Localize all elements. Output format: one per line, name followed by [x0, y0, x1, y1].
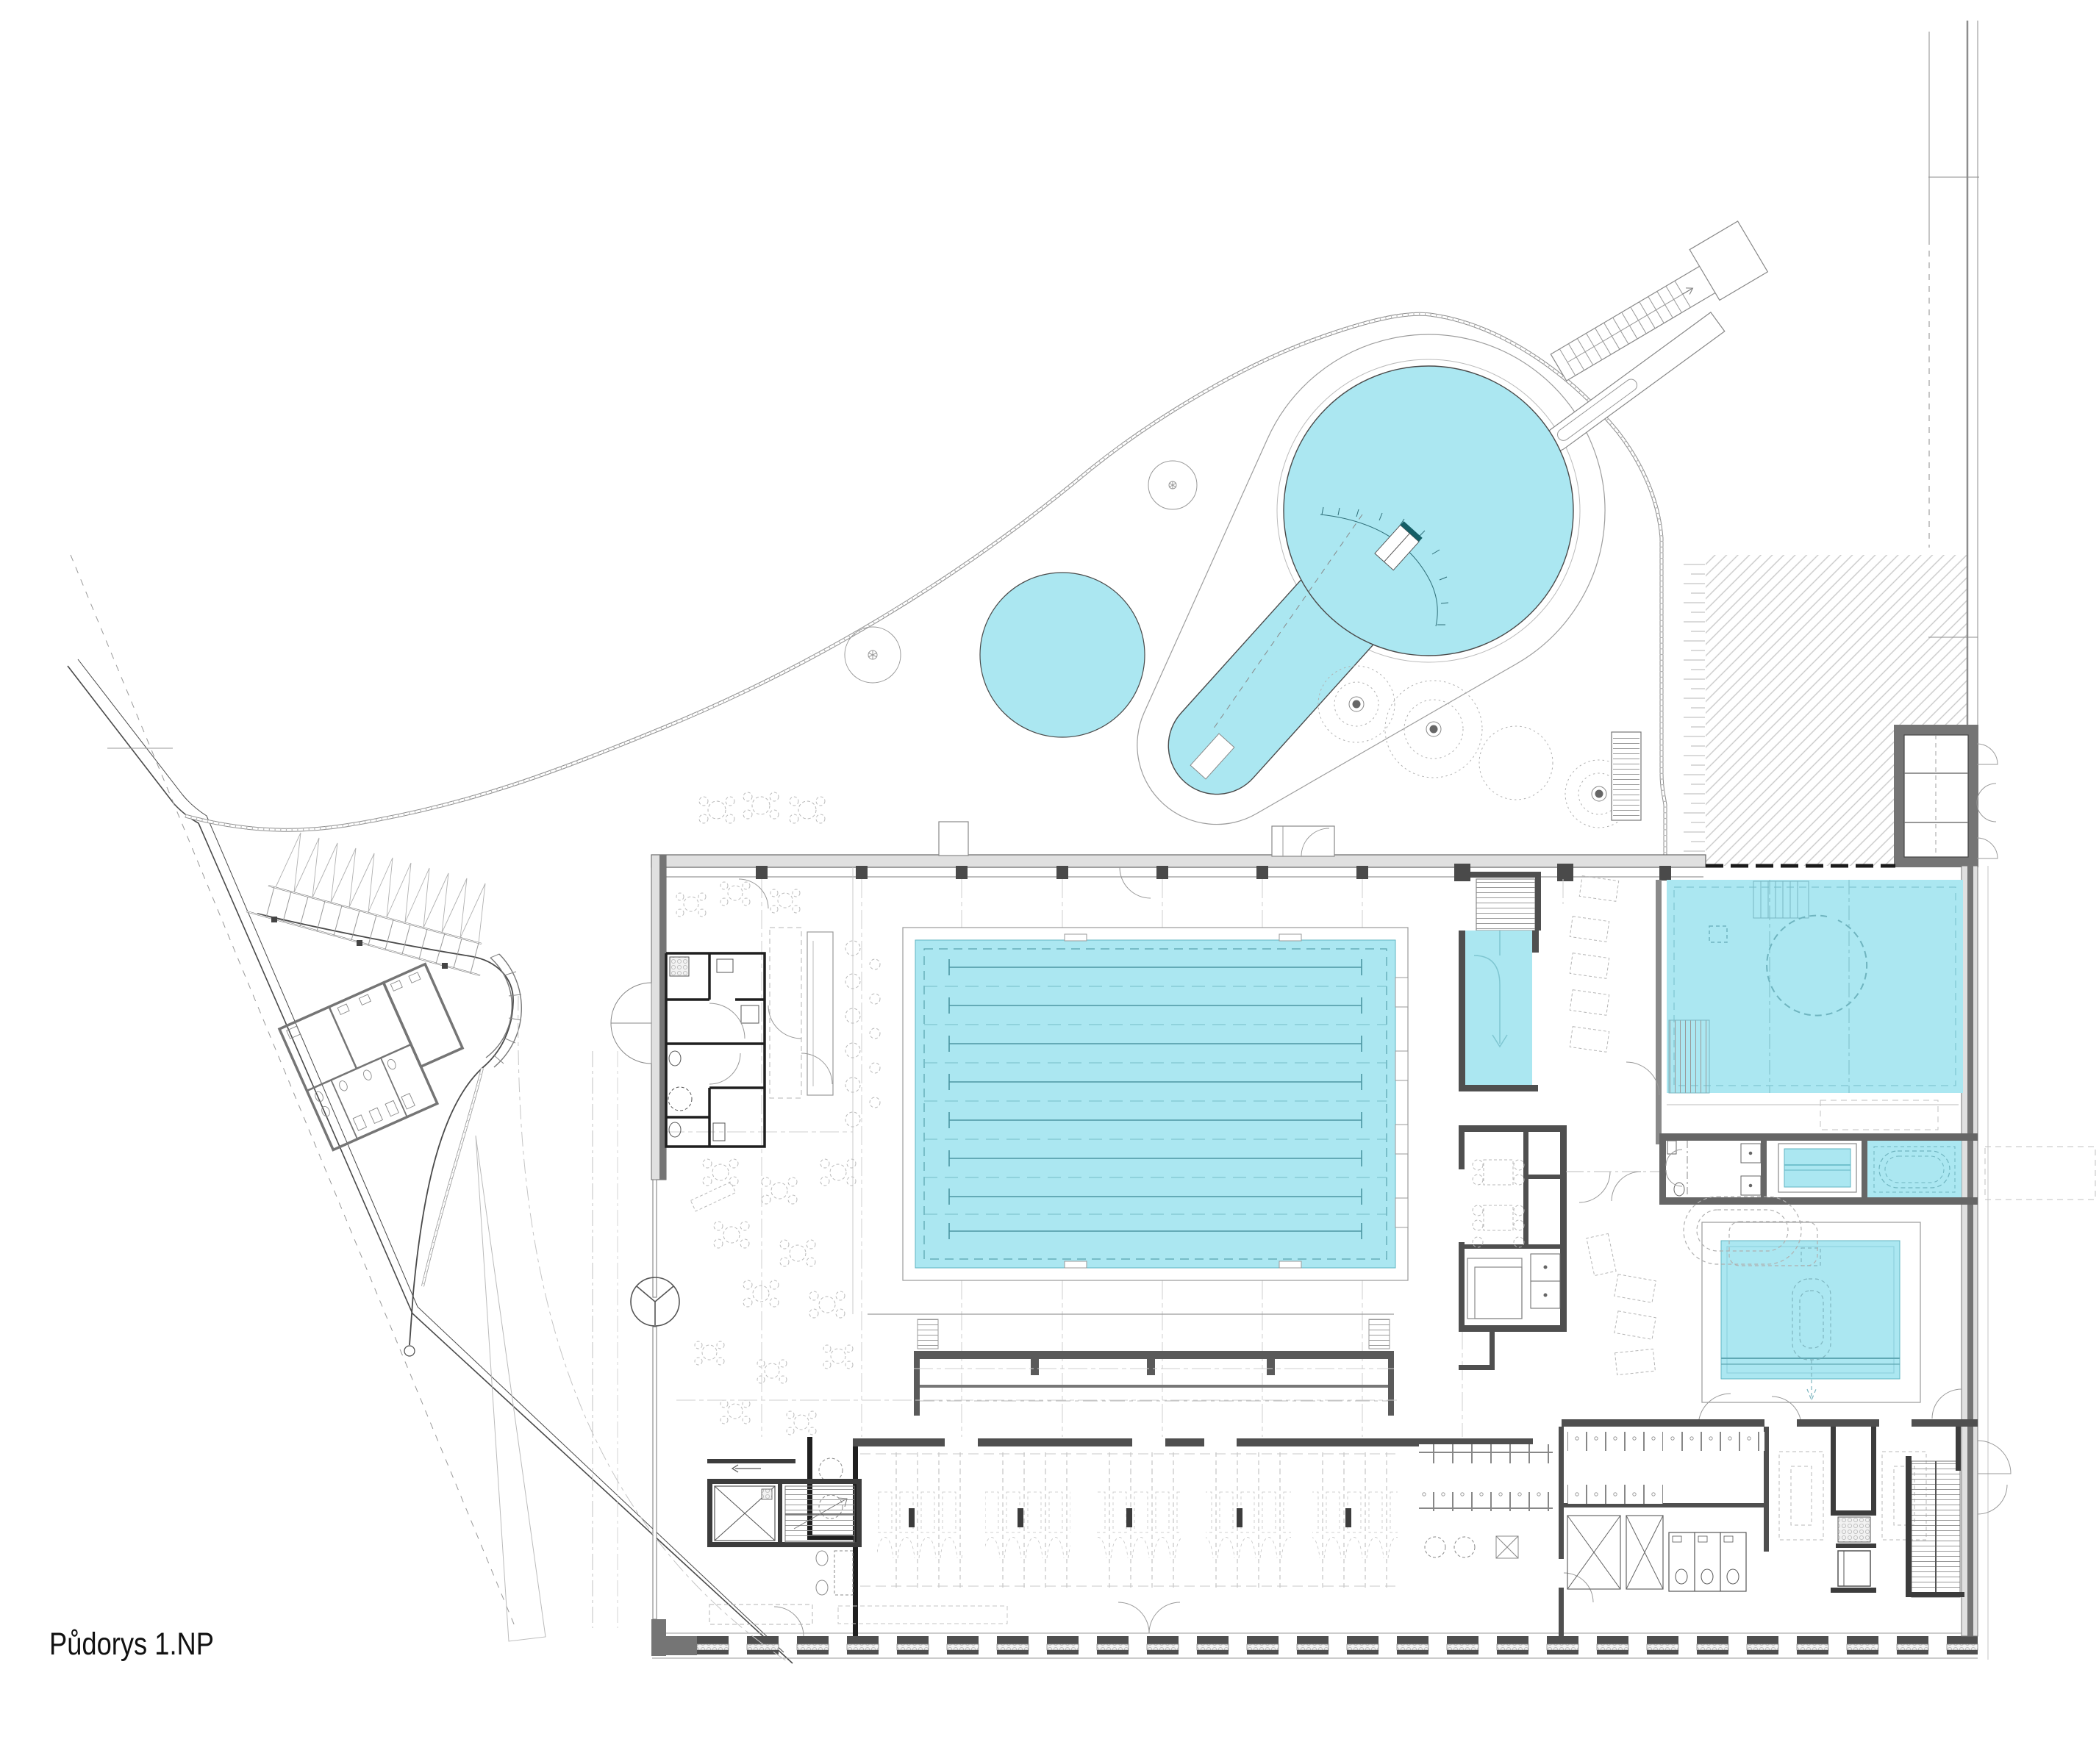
svg-text:Půdorys 1.NP: Půdorys 1.NP	[49, 1627, 214, 1662]
